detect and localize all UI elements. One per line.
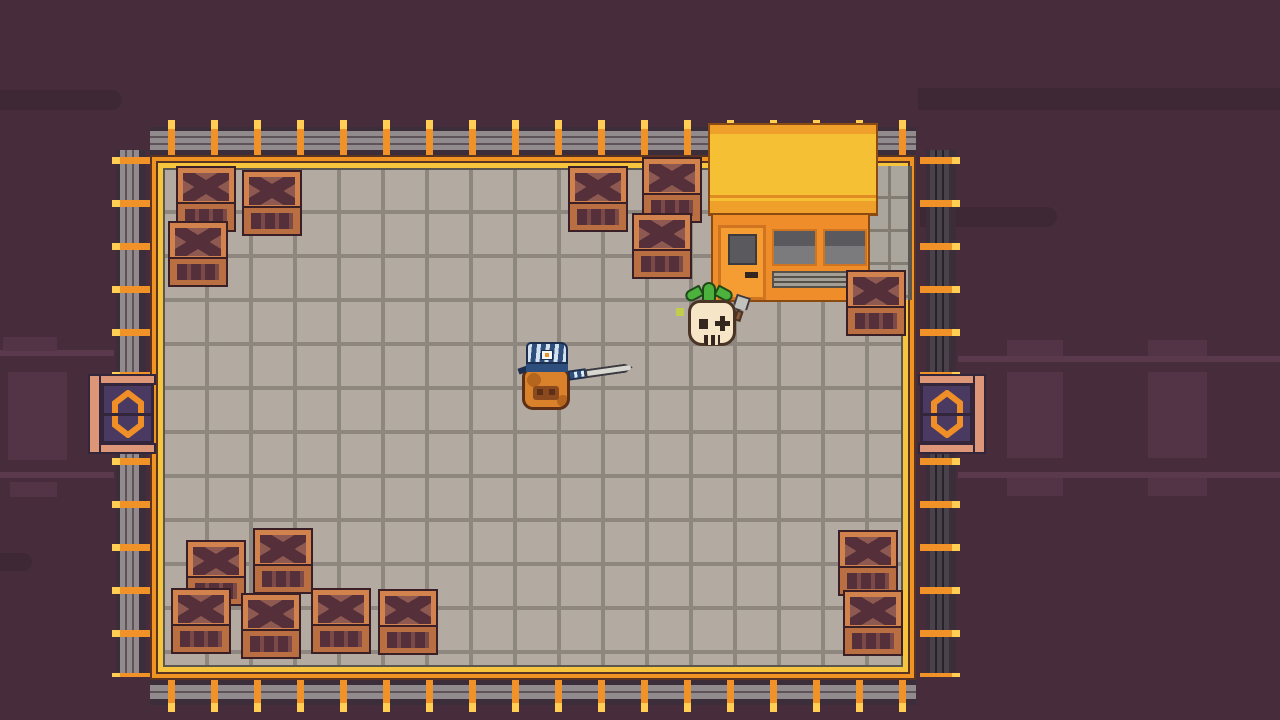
gate-side-plank bbox=[973, 374, 986, 454]
crate-top-face bbox=[173, 590, 229, 628]
crate-top-face bbox=[845, 592, 901, 630]
crate bbox=[644, 159, 700, 221]
crate bbox=[173, 590, 229, 652]
crate-front-pattern bbox=[177, 264, 219, 280]
gate-panel bbox=[101, 383, 154, 444]
enemy-glow-pixel bbox=[676, 308, 684, 316]
crate-top-face bbox=[170, 223, 226, 261]
crate-top-face bbox=[188, 542, 244, 580]
crate-top-face bbox=[644, 159, 700, 197]
arena-fence-bottom bbox=[150, 672, 916, 712]
crate bbox=[255, 530, 311, 592]
crate bbox=[845, 592, 901, 654]
crate-front-face bbox=[840, 568, 896, 594]
gate-right[interactable] bbox=[916, 367, 986, 461]
sword-grip bbox=[568, 368, 587, 380]
crate-front-pattern bbox=[251, 213, 293, 229]
crate-front-pattern bbox=[577, 209, 619, 225]
player-sword bbox=[567, 357, 637, 384]
crate bbox=[840, 532, 896, 594]
gate-split-line bbox=[923, 413, 970, 416]
crate-front-face bbox=[845, 628, 901, 654]
door-handle bbox=[745, 272, 758, 278]
crate-top-face bbox=[634, 215, 690, 253]
crate-front-pattern bbox=[250, 636, 292, 652]
crate-front-pattern bbox=[262, 571, 304, 587]
crate-top-face bbox=[178, 168, 234, 206]
gate-bottom-bar bbox=[918, 443, 975, 454]
crate-front-face bbox=[313, 626, 369, 652]
player-cap bbox=[526, 342, 568, 372]
gate-panel bbox=[920, 383, 973, 444]
crate-front-pattern bbox=[852, 633, 894, 649]
crate-top-face bbox=[313, 590, 369, 628]
gate-bottom-bar bbox=[99, 443, 156, 454]
game-viewport[interactable] bbox=[0, 0, 1280, 720]
window-pane bbox=[823, 229, 868, 266]
crate-top-face bbox=[570, 168, 626, 206]
crate-front-pattern bbox=[847, 573, 889, 589]
player-body bbox=[522, 368, 570, 410]
crate-front-pattern bbox=[180, 631, 222, 647]
enemy-skull-head bbox=[688, 300, 736, 346]
player-face bbox=[533, 386, 559, 400]
crate bbox=[244, 172, 300, 234]
crate bbox=[313, 590, 369, 652]
crate-top-face bbox=[840, 532, 896, 570]
door-window bbox=[728, 234, 757, 265]
leaf-icon bbox=[702, 282, 716, 302]
crate-front-pattern bbox=[641, 256, 683, 272]
enemy[interactable] bbox=[674, 282, 758, 356]
crate-front-face bbox=[848, 308, 904, 334]
window-pane bbox=[772, 229, 817, 266]
crate-front-pattern bbox=[320, 631, 362, 647]
crate-top-face bbox=[244, 172, 300, 210]
player bbox=[516, 336, 636, 416]
crate-top-face bbox=[255, 530, 311, 568]
crate-front-face bbox=[170, 259, 226, 285]
gate-split-line bbox=[104, 413, 151, 416]
building-bench bbox=[772, 271, 849, 288]
crate-top-face bbox=[243, 595, 299, 633]
crate bbox=[848, 272, 904, 334]
enemy-right-eye-cross bbox=[715, 316, 730, 331]
gate-left[interactable] bbox=[88, 367, 158, 461]
crate bbox=[170, 223, 226, 285]
crate-front-face bbox=[380, 627, 436, 653]
enemy-mouth-teeth bbox=[704, 335, 720, 345]
crate-front-pattern bbox=[855, 313, 897, 329]
crate-front-face bbox=[634, 251, 690, 277]
crate-front-pattern bbox=[651, 200, 693, 216]
crate-top-face bbox=[380, 591, 436, 629]
enemy-left-eye bbox=[699, 319, 708, 329]
gate-side-plank bbox=[88, 374, 101, 454]
sword-blade bbox=[585, 363, 634, 379]
crate-top-face bbox=[848, 272, 904, 310]
crate-front-face bbox=[255, 566, 311, 592]
crate-front-face bbox=[570, 204, 626, 230]
crate-front-face bbox=[173, 626, 229, 652]
crate bbox=[243, 595, 299, 657]
crate-front-pattern bbox=[387, 632, 429, 648]
crate-front-face bbox=[244, 208, 300, 234]
building-roof bbox=[708, 123, 878, 216]
cap-logo-icon bbox=[541, 350, 553, 360]
crate-front-face bbox=[243, 631, 299, 657]
crate bbox=[570, 168, 626, 230]
crate bbox=[380, 591, 436, 653]
building-windows bbox=[772, 229, 867, 266]
crate bbox=[178, 168, 234, 230]
crate bbox=[634, 215, 690, 277]
